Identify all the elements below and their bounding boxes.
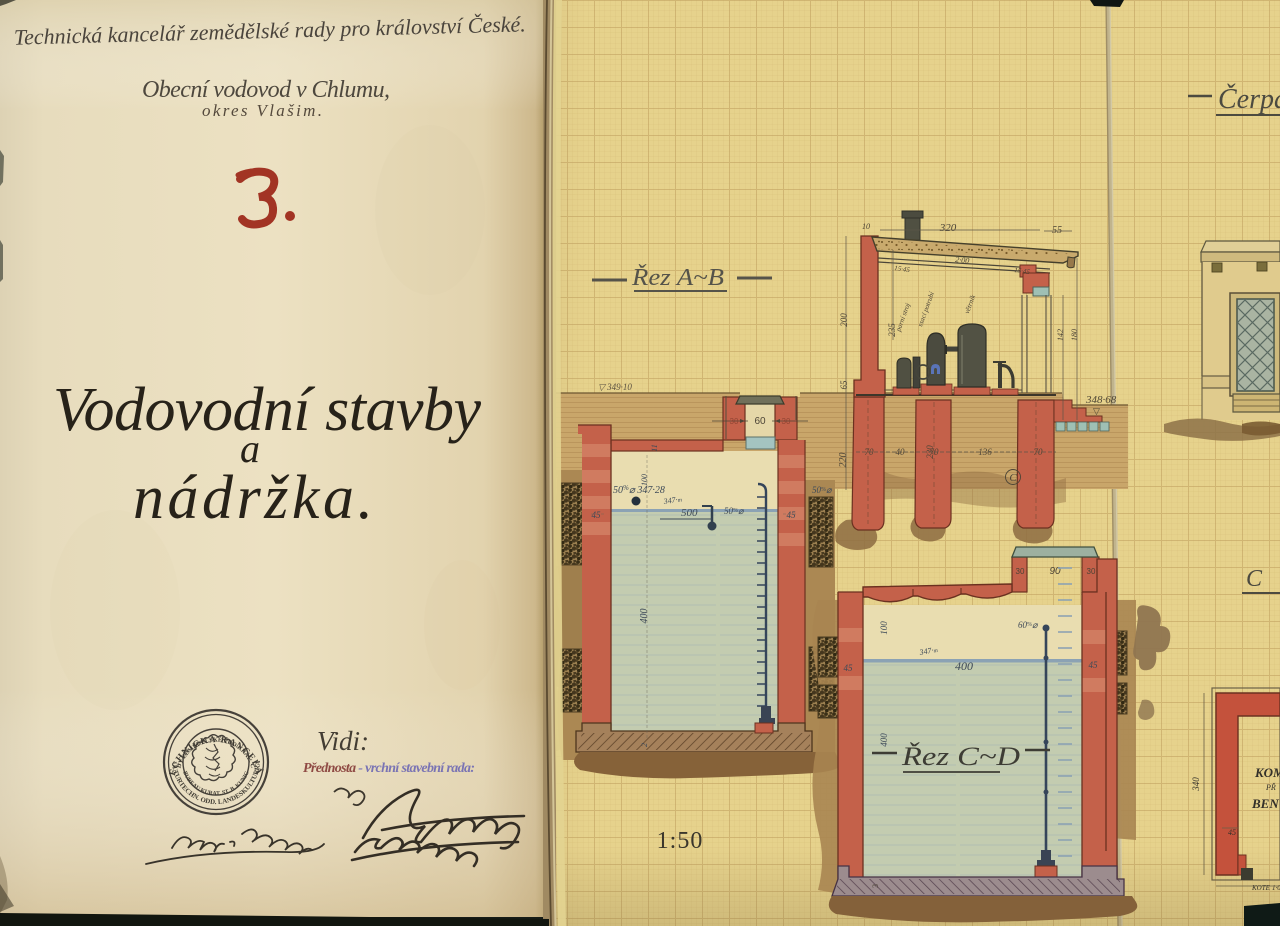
svg-text:Vodovodní stavby: Vodovodní stavby	[53, 376, 481, 444]
svg-text:2: 2	[640, 743, 649, 747]
svg-text:45: 45	[844, 663, 854, 673]
svg-text:65: 65	[839, 380, 849, 390]
svg-text:348·68: 348·68	[1085, 394, 1117, 406]
svg-text:KOTE: KOTE	[1251, 884, 1271, 892]
svg-text:10: 10	[862, 222, 870, 231]
svg-text:▽: ▽	[1093, 406, 1100, 416]
svg-text:400: 400	[639, 609, 650, 624]
svg-text:142: 142	[1056, 329, 1065, 341]
svg-text:3: 3	[871, 884, 880, 888]
svg-text:1:50: 1:50	[657, 828, 704, 854]
svg-text:C: C	[1246, 566, 1263, 592]
svg-text:400: 400	[879, 733, 889, 747]
svg-text:1·0: 1·0	[1272, 884, 1280, 892]
svg-text:PŘ: PŘ	[1265, 782, 1276, 792]
svg-text:11: 11	[650, 444, 659, 451]
svg-text:100: 100	[879, 621, 889, 635]
svg-text:30: 30	[730, 417, 739, 426]
svg-text:Řez C~D: Řez C~D	[901, 742, 1021, 771]
svg-text:2·00: 2·00	[955, 255, 970, 265]
svg-text:okres Vlašim.: okres Vlašim.	[202, 101, 322, 120]
svg-text:C: C	[1009, 472, 1017, 484]
svg-text:BEN: BEN	[1251, 796, 1279, 811]
svg-text:100: 100	[640, 474, 649, 486]
svg-text:Řez A~B: Řez A~B	[631, 265, 724, 291]
svg-text:45: 45	[787, 510, 797, 520]
svg-text:200: 200	[839, 313, 849, 327]
svg-text:30: 30	[1087, 567, 1096, 576]
svg-text:Obecní vodovod v Chlumu,: Obecní vodovod v Chlumu,	[142, 77, 390, 103]
svg-text:220: 220	[838, 453, 849, 468]
svg-text:30: 30	[782, 417, 791, 426]
svg-text:45: 45	[1228, 828, 1236, 837]
svg-text:Čerpa: Čerpa	[1218, 84, 1280, 115]
svg-text:60: 60	[754, 416, 766, 427]
svg-text:Vidi:: Vidi:	[317, 726, 369, 756]
svg-text:400: 400	[955, 659, 973, 673]
svg-text:▽ 349·10: ▽ 349·10	[598, 382, 632, 392]
svg-text:55: 55	[1052, 225, 1062, 236]
svg-text:nádržka.: nádržka.	[133, 464, 373, 532]
svg-text:180: 180	[1070, 329, 1079, 341]
svg-text:Přednosta - vrchní stavební ra: Přednosta - vrchní stavební rada:	[303, 761, 475, 776]
svg-text:KOM: KOM	[1254, 765, 1280, 780]
svg-text:30: 30	[1016, 567, 1025, 576]
svg-text:45: 45	[592, 510, 602, 520]
svg-text:50%⌀ 347·28: 50%⌀ 347·28	[613, 484, 665, 496]
svg-text:500: 500	[681, 507, 698, 519]
svg-text:320: 320	[939, 222, 957, 234]
svg-text:45: 45	[1089, 660, 1099, 670]
svg-text:340: 340	[1191, 777, 1201, 792]
